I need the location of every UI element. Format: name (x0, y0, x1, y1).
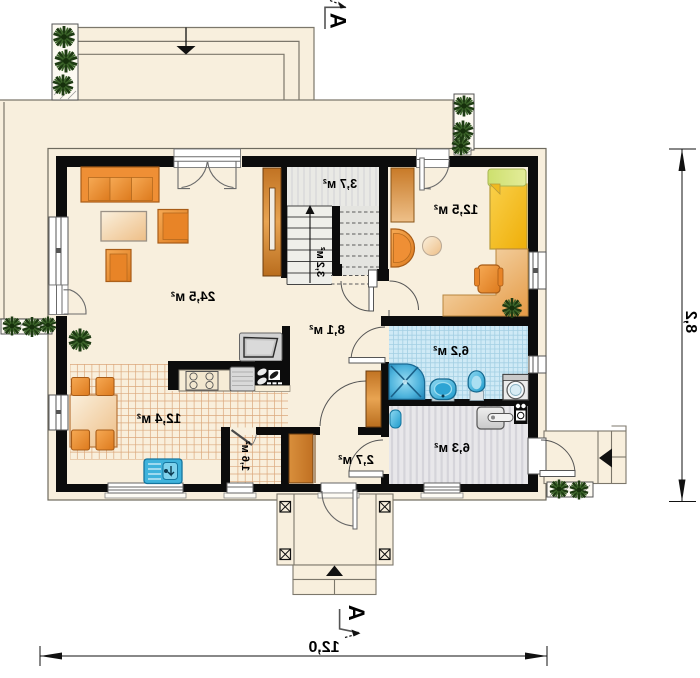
svg-text:3,7 м²: 3,7 м² (323, 177, 357, 191)
svg-text:12,4 м²: 12,4 м² (136, 411, 181, 426)
svg-text:8,1 м²: 8,1 м² (309, 322, 345, 337)
svg-text:8,2: 8,2 (682, 311, 699, 333)
svg-text:A: A (326, 13, 351, 29)
svg-text:12,0: 12,0 (308, 639, 339, 656)
svg-text:6,2 м²: 6,2 м² (433, 343, 469, 358)
svg-text:6,3 м²: 6,3 м² (434, 440, 470, 455)
svg-text:3,2 м²: 3,2 м² (314, 247, 326, 277)
svg-text:24,5 м²: 24,5 м² (170, 289, 215, 304)
svg-text:A: A (344, 605, 369, 621)
svg-text:2,7 м²: 2,7 м² (338, 452, 374, 467)
svg-text:1,6 м²: 1,6 м² (239, 441, 251, 471)
svg-text:12,5 м²: 12,5 м² (433, 202, 478, 217)
